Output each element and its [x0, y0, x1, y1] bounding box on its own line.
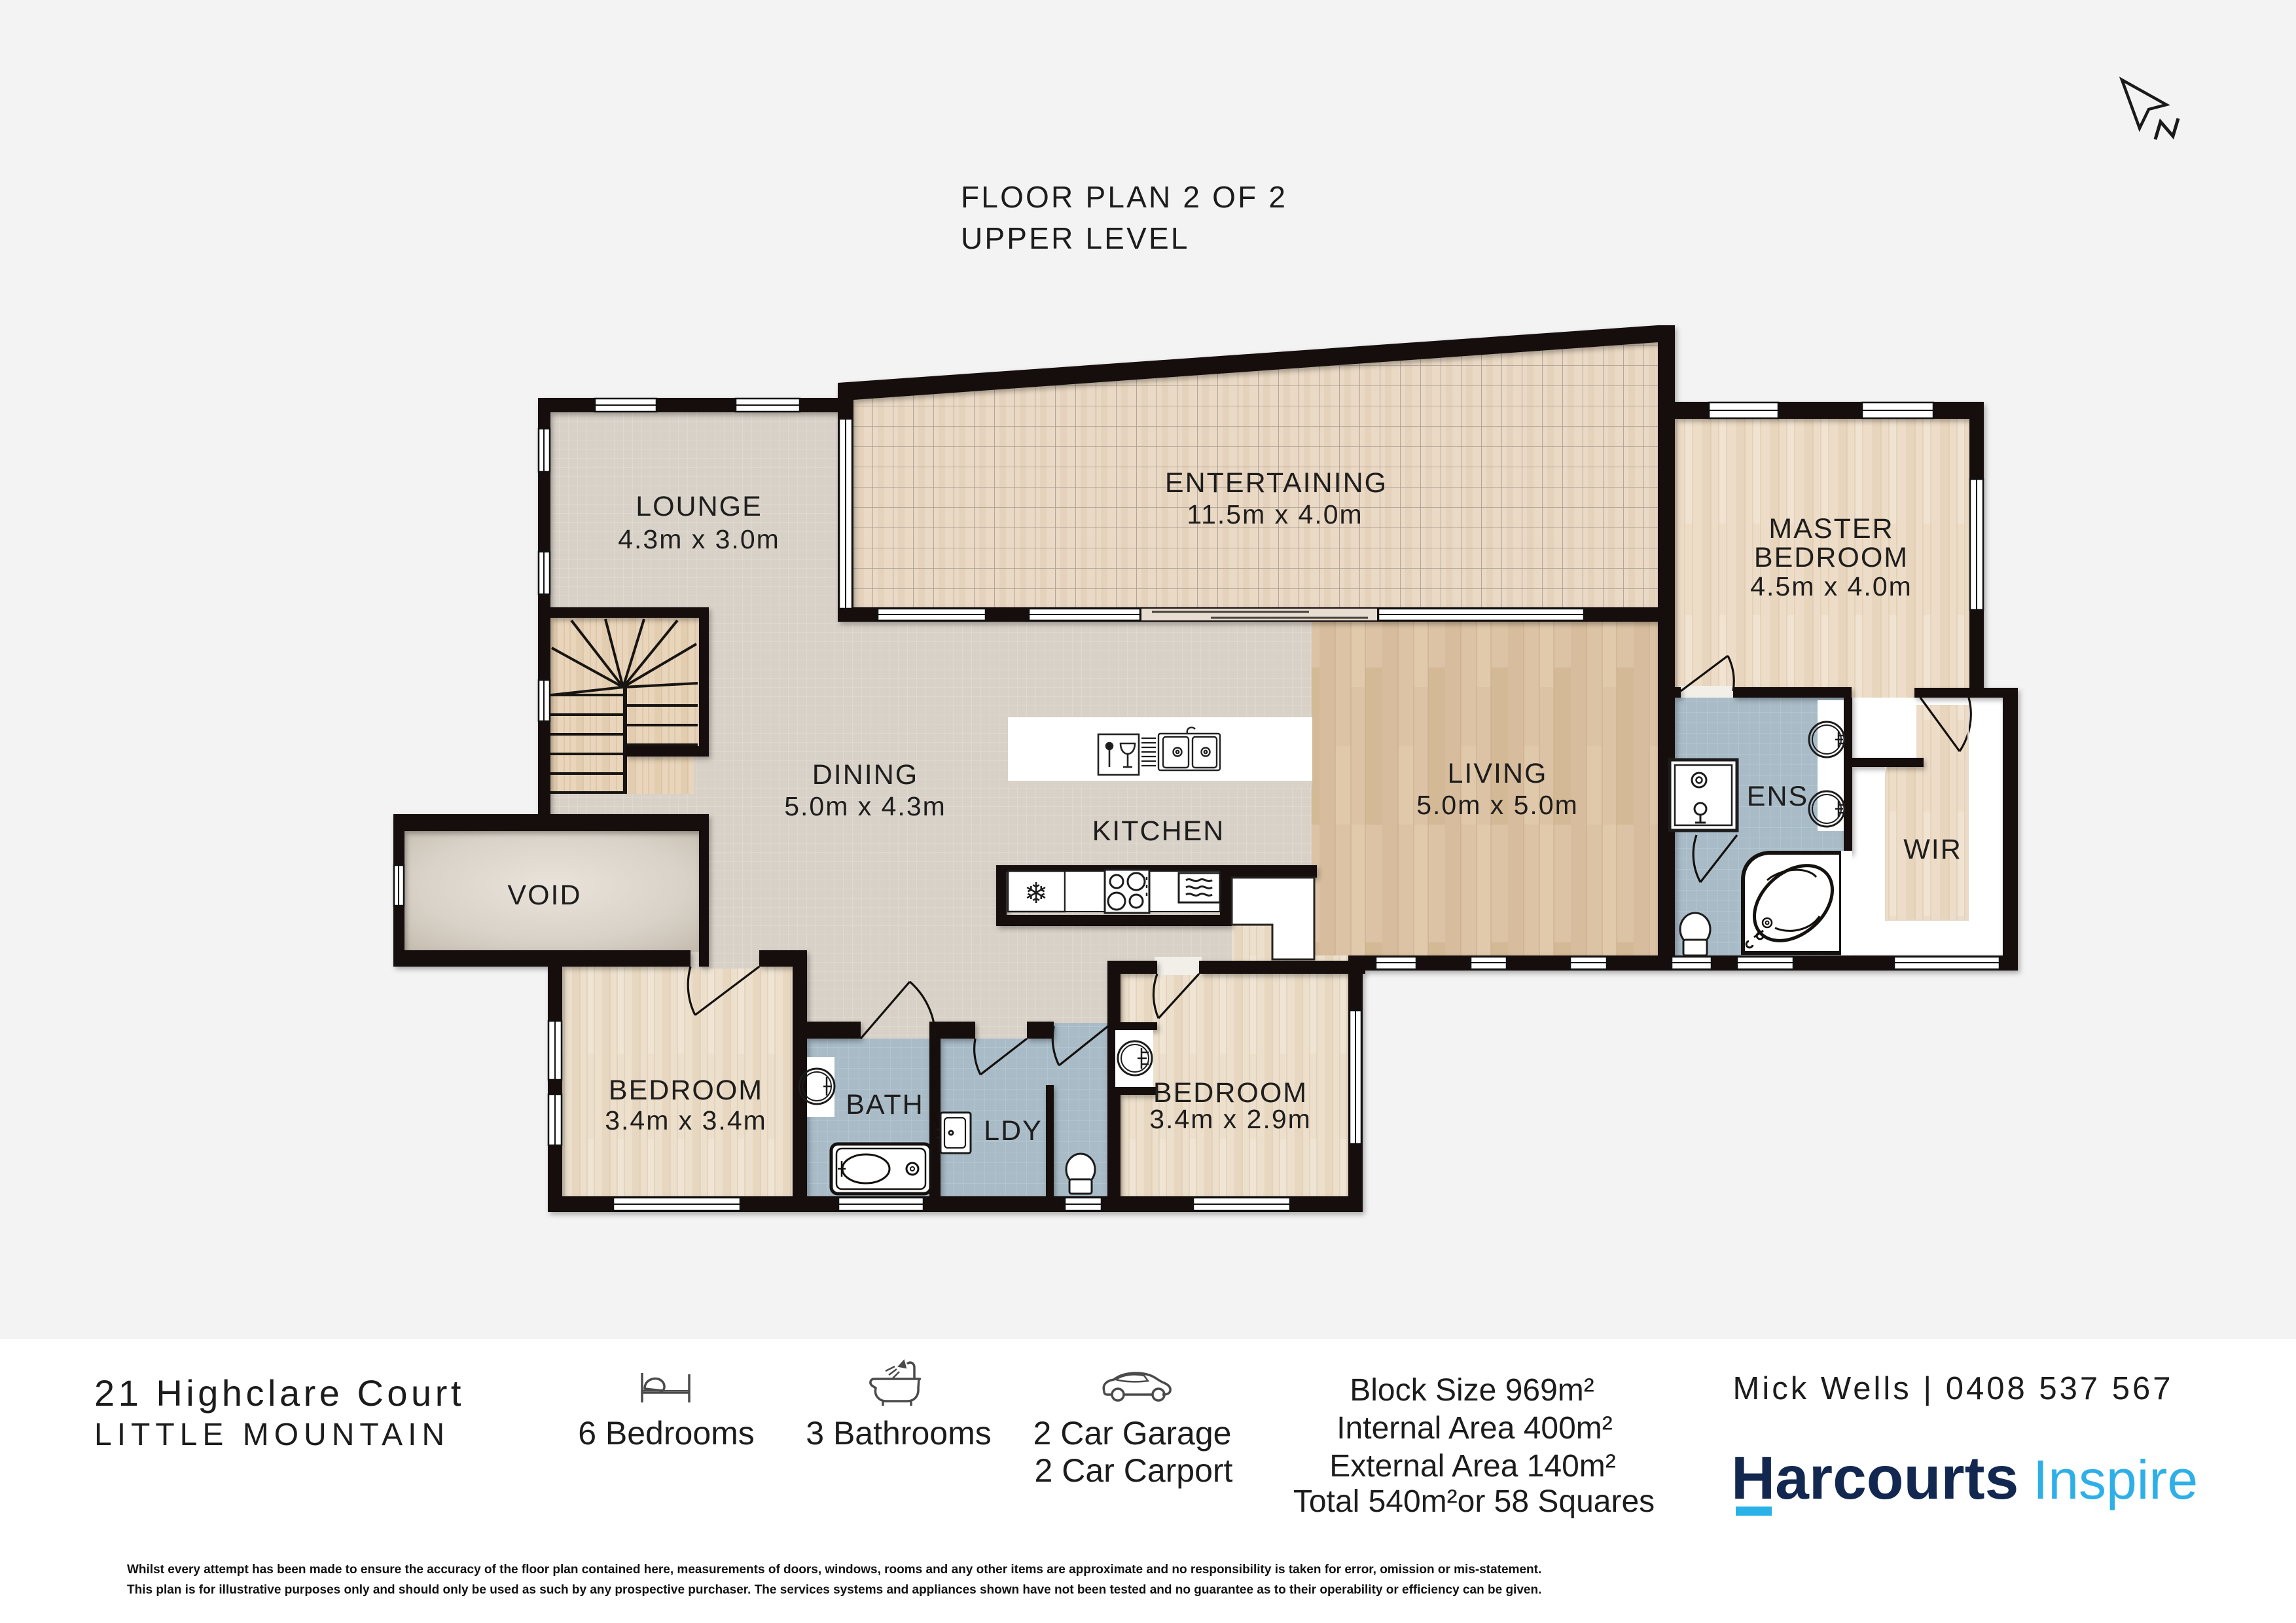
- svg-text:21 Highclare Court: 21 Highclare Court: [94, 1372, 465, 1414]
- svg-text:4.3m x 3.0m: 4.3m x 3.0m: [618, 524, 780, 554]
- svg-text:KITCHEN: KITCHEN: [1092, 815, 1225, 847]
- svg-text:LITTLE MOUNTAIN: LITTLE MOUNTAIN: [94, 1418, 450, 1452]
- svg-text:Block Size 969m²: Block Size 969m²: [1350, 1373, 1594, 1408]
- svg-text:3.4m x 2.9m: 3.4m x 2.9m: [1149, 1104, 1312, 1134]
- svg-text:Total 540m²or 58 Squares: Total 540m²or 58 Squares: [1293, 1484, 1655, 1519]
- svg-text:BEDROOM: BEDROOM: [1754, 542, 1909, 573]
- svg-text:Harcourts: Harcourts: [1731, 1444, 2018, 1512]
- svg-text:ENS: ENS: [1747, 781, 1808, 812]
- svg-text:VOID: VOID: [507, 880, 581, 911]
- svg-text:4.5m x 4.0m: 4.5m x 4.0m: [1750, 571, 1912, 601]
- svg-text:6 Bedrooms: 6 Bedrooms: [578, 1415, 755, 1452]
- svg-text:Internal Area 400m²: Internal Area 400m²: [1336, 1411, 1613, 1446]
- svg-text:WIR: WIR: [1903, 834, 1962, 865]
- svg-text:UPPER LEVEL: UPPER LEVEL: [961, 221, 1190, 255]
- svg-text:3 Bathrooms: 3 Bathrooms: [806, 1415, 991, 1452]
- svg-text:ENTERTAINING: ENTERTAINING: [1165, 467, 1388, 499]
- svg-text:BATH: BATH: [846, 1089, 924, 1120]
- svg-text:Inspire: Inspire: [2033, 1449, 2198, 1510]
- svg-text:5.0m x 5.0m: 5.0m x 5.0m: [1416, 790, 1579, 820]
- svg-text:External Area 140m²: External Area 140m²: [1329, 1449, 1616, 1484]
- svg-text:3.4m x 3.4m: 3.4m x 3.4m: [605, 1105, 767, 1135]
- svg-text:11.5m x 4.0m: 11.5m x 4.0m: [1187, 499, 1363, 529]
- svg-text:LOUNGE: LOUNGE: [636, 491, 762, 522]
- svg-text:This plan is for illustrative: This plan is for illustrative purposes o…: [127, 1583, 1541, 1597]
- svg-text:Mick Wells | 0408 537 567: Mick Wells | 0408 537 567: [1733, 1371, 2174, 1406]
- svg-text:❄: ❄: [1024, 878, 1049, 910]
- svg-text:LDY: LDY: [984, 1115, 1043, 1147]
- svg-text:FLOOR PLAN 2 OF 2: FLOOR PLAN 2 OF 2: [961, 180, 1287, 214]
- svg-text:MASTER: MASTER: [1768, 513, 1893, 544]
- svg-text:Whilst every attempt has been: Whilst every attempt has been made to en…: [127, 1563, 1541, 1577]
- svg-text:BEDROOM: BEDROOM: [609, 1075, 763, 1106]
- svg-text:2 Car Carport: 2 Car Carport: [1035, 1452, 1233, 1489]
- svg-text:2 Car Garage: 2 Car Garage: [1033, 1415, 1232, 1452]
- svg-text:5.0m x 4.3m: 5.0m x 4.3m: [784, 791, 946, 821]
- svg-text:LIVING: LIVING: [1448, 758, 1548, 789]
- svg-text:DINING: DINING: [812, 759, 919, 791]
